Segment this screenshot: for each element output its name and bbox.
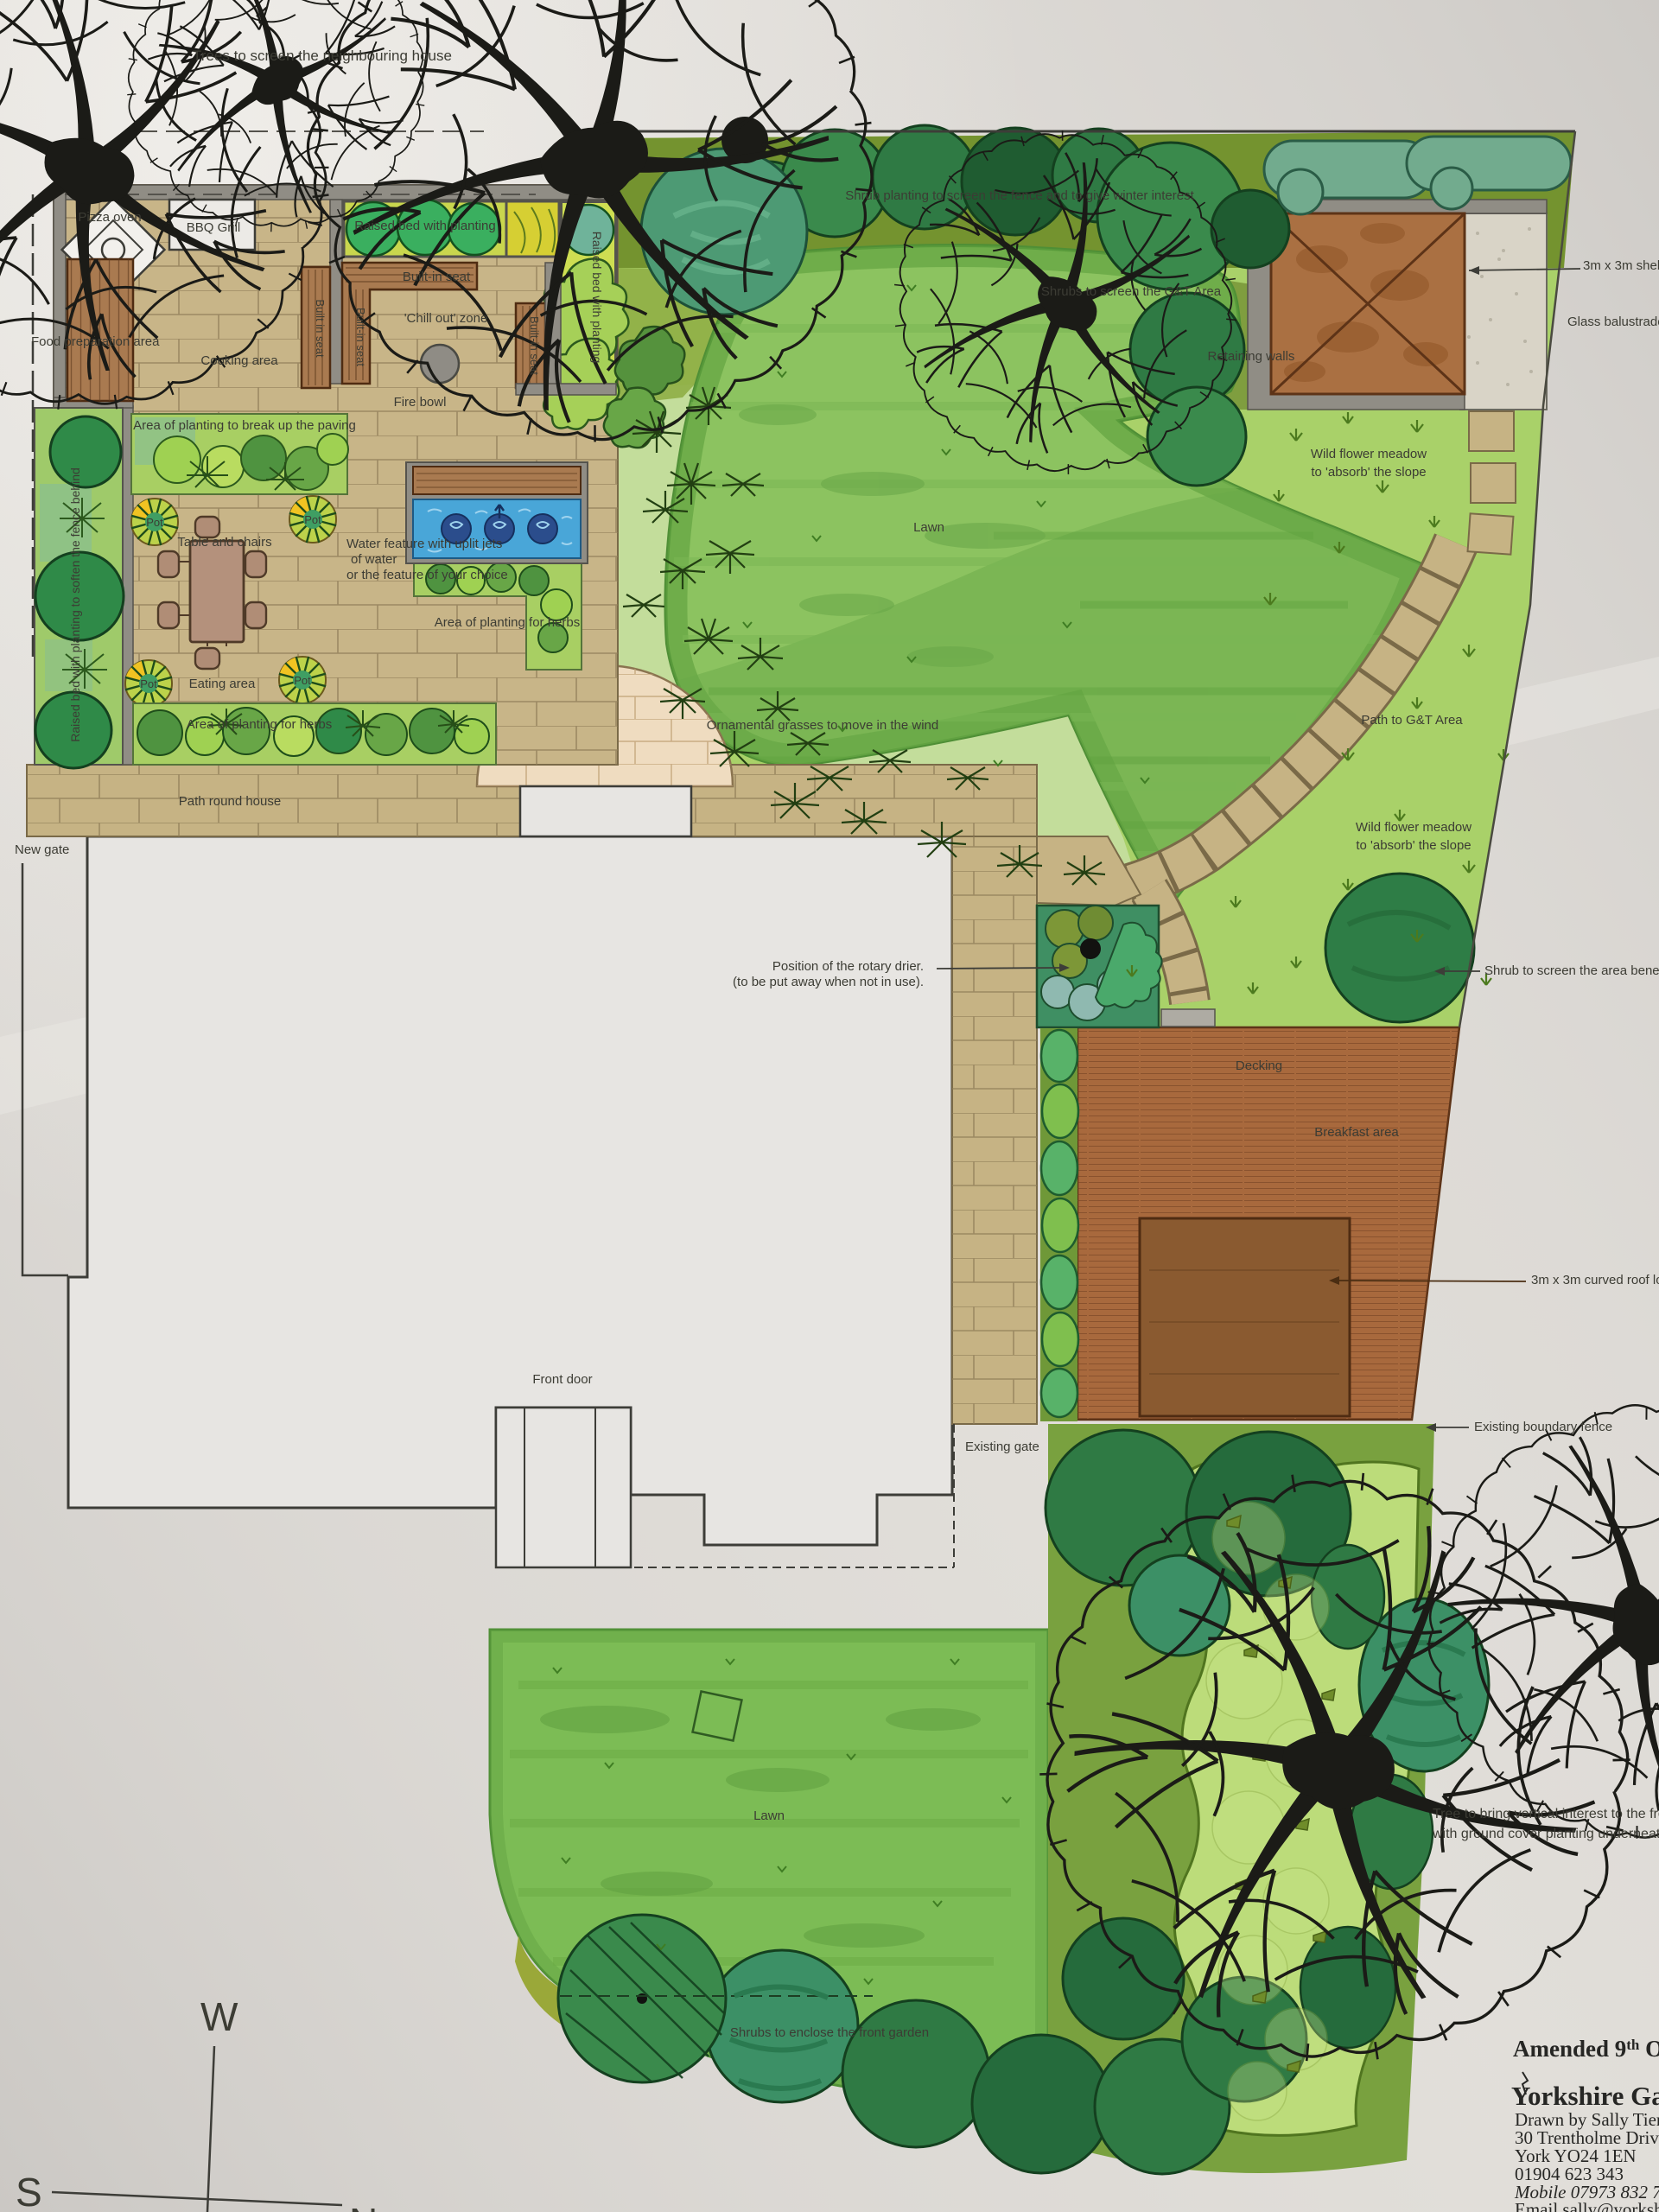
svg-text:Built-in seat: Built-in seat [403, 270, 471, 284]
svg-text:W: W [200, 1994, 238, 2039]
svg-text:Area of planting to break up t: Area of planting to break up the paving [133, 418, 356, 433]
svg-text:Pot: Pot [140, 677, 157, 690]
svg-text:(to be put away when not in us: (to be put away when not in use). [733, 975, 924, 989]
svg-text:Fire bowl: Fire bowl [394, 395, 447, 410]
svg-text:BBQ Grill: BBQ Grill [187, 220, 241, 235]
svg-text:Area of planting for herbs: Area of planting for herbs [435, 615, 580, 630]
svg-text:Path to G&T Area: Path to G&T Area [1361, 713, 1463, 728]
svg-text:Pizza oven: Pizza oven [78, 210, 141, 225]
svg-text:Email sally@yorkshirega: Email sally@yorkshirega [1515, 2199, 1659, 2212]
svg-text:Built in seat: Built in seat [314, 299, 327, 358]
svg-text:Shrub planting to screen the f: Shrub planting to screen the fence and t… [845, 188, 1194, 203]
svg-text:to 'absorb' the slope: to 'absorb' the slope [1356, 838, 1471, 853]
svg-text:Raised bed with planting: Raised bed with planting [590, 232, 604, 364]
svg-text:or the feature of your choice: or the feature of your choice [346, 568, 508, 582]
svg-text:Existing boundary fence: Existing boundary fence [1474, 1420, 1612, 1434]
svg-text:3m x 3m curved roof log ca: 3m x 3m curved roof log ca [1531, 1273, 1659, 1287]
svg-text:3m x 3m shelter,: 3m x 3m shelter, [1583, 258, 1659, 273]
svg-text:Water feature with uplit jets: Water feature with uplit jets [346, 537, 502, 551]
svg-text:Built-in seat: Built-in seat [354, 308, 367, 366]
svg-text:S: S [16, 2170, 42, 2212]
svg-text:Path round house: Path round house [179, 794, 281, 809]
svg-text:of water: of water [351, 552, 397, 567]
svg-text:Table and chairs: Table and chairs [177, 535, 271, 550]
svg-text:Trees to screen the neighbouri: Trees to screen the neighbouring house [193, 48, 452, 64]
svg-text:Food preparation area: Food preparation area [31, 334, 160, 349]
svg-text:to 'absorb' the slope: to 'absorb' the slope [1311, 465, 1426, 480]
svg-text:Existing gate: Existing gate [965, 1440, 1039, 1454]
svg-text:Area of planting for herbs: Area of planting for herbs [187, 717, 332, 732]
svg-text:Breakfast area: Breakfast area [1314, 1125, 1399, 1140]
svg-text:Lawn: Lawn [913, 520, 944, 535]
svg-text:Raised bed with planting: Raised bed with planting [354, 219, 495, 233]
svg-text:Cooking area: Cooking area [200, 353, 278, 368]
svg-text:'Chill out' zone: 'Chill out' zone [404, 311, 488, 326]
svg-text:Front door: Front door [532, 1372, 592, 1387]
svg-text:Shrubs to enclose the front ga: Shrubs to enclose the front garden [730, 2025, 929, 2040]
svg-text:Pot: Pot [294, 674, 311, 687]
svg-text:Pot: Pot [146, 516, 163, 529]
svg-text:with ground cover planting und: with ground cover planting underneath [1432, 1827, 1659, 1841]
svg-text:Tree to bring vertical interes: Tree to bring vertical interest to the f… [1433, 1807, 1659, 1821]
svg-text:Yorkshire Garden D: Yorkshire Garden D [1511, 2081, 1659, 2111]
svg-text:Retaining walls: Retaining walls [1208, 349, 1295, 364]
svg-text:Glass balustrade to: Glass balustrade to [1567, 315, 1659, 329]
svg-text:Shrubs to screen the G&T Area: Shrubs to screen the G&T Area [1041, 284, 1222, 299]
svg-text:Shrub to screen the area benea: Shrub to screen the area beneath [1484, 963, 1659, 978]
svg-text:Decking: Decking [1236, 1058, 1282, 1073]
svg-text:Pot: Pot [304, 513, 321, 526]
svg-text:Built-in seat: Built-in seat [528, 316, 541, 375]
svg-text:Lawn: Lawn [753, 1808, 785, 1823]
svg-text:Raised bed with planting to so: Raised bed with planting to soften the f… [68, 467, 82, 742]
svg-text:N: N [349, 2200, 378, 2212]
svg-text:New gate: New gate [15, 842, 69, 857]
svg-text:Wild flower meadow: Wild flower meadow [1311, 447, 1427, 461]
svg-text:Ornamental grasses to move in: Ornamental grasses to move in the wind [707, 718, 938, 733]
svg-text:Eating area: Eating area [189, 677, 256, 691]
svg-text:Position of the rotary drier.: Position of the rotary drier. [772, 959, 924, 974]
svg-text:Wild flower meadow: Wild flower meadow [1356, 820, 1471, 835]
